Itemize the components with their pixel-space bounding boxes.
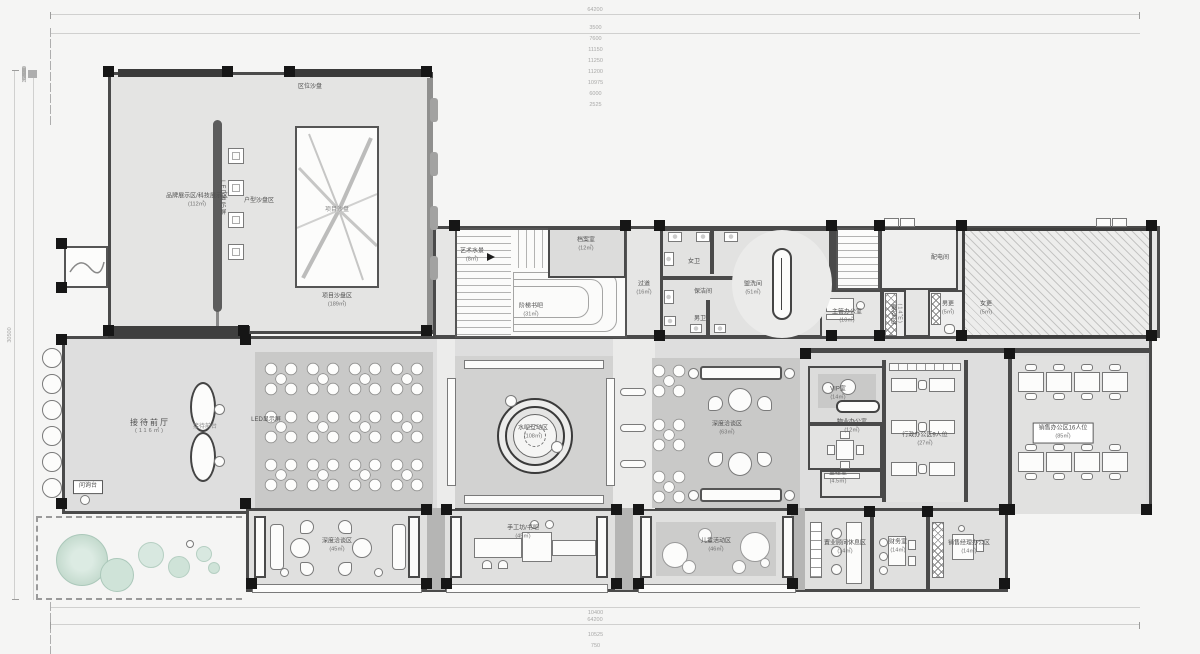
office-chair	[1109, 473, 1121, 480]
room-label: 置业顾问休息区(14㎡)	[824, 541, 866, 556]
unit-model-table	[228, 148, 244, 164]
structural-column	[1004, 348, 1015, 359]
room-label: 行政办公区9人位(27㎡)	[902, 433, 947, 448]
office-chair	[1025, 364, 1037, 371]
room-label: 深度洽谈区(63㎡)	[712, 422, 742, 437]
stairs	[836, 228, 880, 290]
bench	[464, 360, 604, 369]
room-label: 手工坊/书吧(45㎡)	[507, 526, 539, 541]
door-frame	[450, 516, 462, 578]
room-name: VIP室	[830, 387, 846, 393]
lockers	[932, 522, 944, 578]
lounge-chair	[300, 562, 314, 576]
structural-column	[633, 578, 644, 589]
office-desk	[1074, 452, 1100, 472]
room-area: (51㎡)	[744, 289, 762, 296]
room-area: (31㎡)	[519, 311, 543, 318]
room-label: 儿童活动区(46㎡)	[701, 539, 731, 554]
sink-fixture	[690, 324, 702, 333]
room-area: (63㎡)	[712, 429, 742, 436]
stool	[374, 568, 383, 577]
office-desk	[1102, 452, 1128, 472]
sofa	[700, 366, 782, 380]
structural-column	[56, 334, 67, 345]
side-table	[784, 368, 795, 379]
shrub	[138, 542, 164, 568]
room-label: 深度洽谈区(45㎡)	[322, 539, 352, 554]
office-desk	[1074, 372, 1100, 392]
room-name: 问询台	[79, 483, 97, 489]
round-table	[728, 452, 752, 476]
stool	[958, 525, 965, 532]
table-seating-cluster	[306, 410, 340, 444]
lounge-chair	[757, 396, 772, 411]
dim-tick	[28, 77, 37, 78]
office-chair	[918, 380, 927, 390]
room-name: 深度洽谈区	[322, 539, 352, 545]
room-name: 男更	[942, 302, 954, 308]
tree	[100, 558, 134, 592]
office-desk	[929, 462, 955, 476]
side-table	[784, 490, 795, 501]
room-label: 盥洗间(51㎡)	[744, 282, 762, 297]
cabinet-row	[889, 363, 961, 371]
wall-heavy	[108, 326, 250, 338]
door-leaf	[1096, 218, 1111, 227]
sink-fixture	[664, 316, 676, 326]
room-label: 更衣区(14㎡)	[888, 304, 903, 325]
bay-window	[252, 584, 422, 593]
office-chair	[1109, 444, 1121, 451]
bay-window	[638, 584, 796, 593]
room-area: (189㎡)	[322, 301, 352, 308]
room-area: (46㎡)	[701, 546, 731, 553]
structural-column	[611, 504, 622, 515]
wall	[806, 348, 1152, 353]
structural-column	[922, 506, 933, 517]
structural-column	[787, 504, 798, 515]
room-label: 区位沙盘	[298, 84, 322, 92]
room-label: 男卫	[694, 316, 706, 324]
room-area: (116㎡)	[130, 429, 170, 436]
room-label: 艺术水景(8㎡)	[460, 249, 484, 264]
office-chair	[1081, 473, 1093, 480]
dim-top-segments: 350076001115011250112001097560002525	[50, 26, 1140, 36]
structural-column	[421, 578, 432, 589]
dim-label: 3500	[51, 25, 1140, 31]
unit-model-table	[228, 212, 244, 228]
table-seating-cluster	[306, 362, 340, 396]
toilet-fixture	[664, 290, 674, 304]
structural-column	[654, 330, 665, 341]
room-name: 行政办公区9人位	[902, 433, 947, 439]
decor-curve	[66, 248, 106, 286]
stool	[831, 564, 842, 575]
dim-label: 11250	[51, 58, 1140, 64]
room-name: 监控室	[829, 471, 847, 477]
room-label: 阶梯书吧(31㎡)	[519, 304, 543, 319]
room-name: 配电间	[931, 255, 949, 261]
stairs	[457, 230, 511, 336]
office-chair	[1053, 364, 1065, 371]
round-table	[352, 538, 372, 558]
entry-vestibule	[64, 246, 108, 288]
room-label: 问询台	[73, 480, 103, 494]
structural-column	[826, 220, 837, 231]
round-table	[728, 388, 752, 412]
table-seating-cluster	[348, 362, 382, 396]
room-label: 档案室(12㎡)	[577, 238, 595, 253]
room-area: (10㎡)	[832, 317, 862, 324]
room-area: (5㎡)	[980, 309, 992, 316]
structural-column	[874, 330, 885, 341]
stool	[214, 404, 225, 415]
shrub	[196, 546, 212, 562]
office-chair	[1025, 444, 1037, 451]
door-frame	[640, 516, 652, 578]
room-name: 女卫	[688, 259, 700, 265]
room-archive	[548, 228, 626, 278]
curtain-scallop	[42, 374, 62, 394]
room-label: 销售办公区16人位(85㎡)	[1033, 423, 1094, 444]
wall	[870, 512, 874, 590]
structural-column	[800, 348, 811, 359]
structural-column	[240, 334, 251, 345]
lounge-chair	[708, 396, 723, 411]
direction-arrow	[487, 253, 495, 261]
table-seating-cluster	[390, 362, 424, 396]
bench	[620, 460, 646, 468]
room-name: LED显示屏	[219, 180, 225, 216]
dim-bottom-total: 64200	[50, 624, 1140, 625]
structural-column	[441, 578, 452, 589]
office-chair	[1081, 444, 1093, 451]
dim-label: 64200	[587, 7, 602, 13]
dim-label: 7600	[51, 36, 1140, 42]
chair	[856, 445, 864, 455]
long-table	[552, 540, 596, 556]
table-seating-cluster	[652, 470, 686, 504]
office-desk	[891, 462, 917, 476]
structural-column	[787, 578, 798, 589]
room-name: 深度洽谈区	[712, 422, 742, 428]
stool	[545, 520, 554, 529]
table-seating-cluster	[264, 362, 298, 396]
chair	[840, 461, 850, 469]
dim-segment: 2525	[50, 105, 1140, 114]
wall	[882, 360, 886, 502]
structural-column	[449, 220, 460, 231]
unit-model-table	[228, 180, 244, 196]
room-label: 接待前厅(116㎡)	[130, 418, 170, 436]
structural-column	[874, 220, 885, 231]
room-name: 接待前台	[193, 424, 217, 430]
wall	[964, 360, 968, 502]
cabinet	[810, 522, 822, 578]
structural-column	[56, 282, 67, 293]
structural-column	[864, 506, 875, 517]
structural-column	[956, 220, 967, 231]
stool	[280, 568, 289, 577]
room-name: 女更	[980, 302, 992, 308]
door-frame	[596, 516, 608, 578]
room-label: 财务室(14㎡)	[889, 540, 907, 555]
room-name: 接待前厅	[130, 418, 170, 427]
chair	[879, 566, 888, 575]
structural-column	[654, 220, 665, 231]
curtain-scallop	[42, 348, 62, 368]
office-chair	[1025, 473, 1037, 480]
dim-left-segments: 60086007005300105003000	[26, 70, 36, 600]
side-table	[688, 490, 699, 501]
play-pool	[732, 560, 746, 574]
sofa	[700, 488, 782, 502]
play-pool	[682, 560, 696, 574]
room-name: 水吧互动区	[518, 426, 548, 432]
room-label: 水吧互动区(108㎡)	[518, 426, 548, 441]
office-chair	[1081, 364, 1093, 371]
room-name: 阶梯书吧	[519, 304, 543, 310]
door-leaf	[1112, 218, 1127, 227]
room-name: 销售经理办公区	[948, 541, 990, 547]
vanity-counter	[772, 248, 792, 320]
room-name: 艺术水景	[460, 249, 484, 255]
curtain-scallop	[42, 426, 62, 446]
toilet-fixture	[664, 252, 674, 266]
office-chair	[1081, 393, 1093, 400]
office-desk	[1046, 372, 1072, 392]
chair	[908, 540, 916, 550]
room-area: (12㎡)	[837, 427, 867, 434]
room-label: 配电间	[931, 255, 949, 263]
dim-label: 11200	[51, 69, 1140, 75]
table-seating-cluster	[348, 410, 382, 444]
sink-fixture	[714, 324, 726, 333]
room-name: 档案室	[577, 238, 595, 244]
room-label: 项目沙盘区(189㎡)	[322, 294, 352, 309]
room-area: (14㎡)	[830, 394, 846, 401]
chair	[879, 538, 888, 547]
table-seating-cluster	[652, 418, 686, 452]
room-label: VIP室(14㎡)	[830, 387, 846, 402]
curtain-scallop	[42, 400, 62, 420]
office-desk	[1046, 452, 1072, 472]
table-seating-cluster	[652, 364, 686, 398]
office-chair	[1053, 393, 1065, 400]
bench	[620, 424, 646, 432]
room-name: 户型沙盘区	[244, 198, 274, 204]
lockers	[931, 293, 941, 325]
room-name: 财务室	[889, 540, 907, 546]
structural-column	[246, 578, 257, 589]
wall	[926, 512, 930, 590]
office-chair	[1109, 393, 1121, 400]
room-label: LED显示屏	[217, 180, 225, 216]
dim-tick	[50, 116, 1140, 125]
room-area: (4.5㎡)	[829, 478, 847, 485]
room-name: LED显示屏	[251, 417, 281, 423]
lounge-chair	[338, 562, 352, 576]
unit-model-table	[228, 244, 244, 260]
room-name: 物业办公室	[837, 420, 867, 426]
structural-column	[421, 504, 432, 515]
stool	[482, 560, 492, 569]
office-chair	[1053, 473, 1065, 480]
stool	[80, 495, 90, 505]
dim-bottom-segments: 1040010525750104507501032553502000	[50, 600, 1140, 610]
room-area: (45㎡)	[507, 533, 539, 540]
room-area: (85㎡)	[1039, 433, 1088, 440]
room-area: (108㎡)	[518, 433, 548, 440]
curtain-scallop	[42, 452, 62, 472]
desk	[836, 440, 854, 460]
chair	[908, 556, 916, 566]
dim-label: 10975	[51, 80, 1140, 86]
dim-label: 64200	[587, 617, 602, 623]
chair	[879, 552, 888, 561]
play-pool	[760, 558, 770, 568]
chair	[827, 445, 835, 455]
table-seating-cluster	[264, 410, 298, 444]
door-frame	[408, 516, 420, 578]
structural-column	[1146, 330, 1157, 341]
room-name: 销售办公区16人位	[1039, 426, 1088, 432]
wall	[710, 230, 714, 274]
structural-column	[1004, 504, 1015, 515]
room-name: 保洁间	[694, 289, 712, 295]
toilet-fixture	[668, 232, 682, 242]
lounge-chair	[338, 520, 352, 534]
structural-column	[620, 220, 631, 231]
office-chair	[918, 422, 927, 432]
floor-plan: 64200 3500760011150112501120010975600025…	[0, 0, 1200, 654]
bench	[464, 495, 604, 504]
office-desk	[1018, 452, 1044, 472]
vanity-line	[781, 258, 782, 310]
room-shaft-hatched	[962, 228, 1152, 338]
room-name: 儿童活动区	[701, 539, 731, 545]
dim-label: 30500	[7, 327, 13, 342]
toilet-fixture	[724, 232, 738, 242]
dim-label: 11150	[51, 47, 1140, 53]
office-desk	[891, 378, 917, 392]
room-label: 销售经理办公区(14㎡)	[948, 541, 990, 556]
room-label: 保洁间	[694, 289, 712, 297]
office-desk	[1018, 372, 1044, 392]
room-area: (16㎡)	[636, 289, 651, 296]
door-leaf	[884, 218, 899, 227]
structural-column	[103, 325, 114, 336]
office-chair	[1025, 393, 1037, 400]
room-area: (14㎡)	[824, 548, 866, 555]
office-chair	[918, 464, 927, 474]
room-label: 女更(5㎡)	[980, 302, 992, 317]
table-seating-cluster	[390, 410, 424, 444]
sofa	[836, 400, 880, 413]
office-desk	[1102, 372, 1128, 392]
dim-top-total: 64200	[50, 14, 1140, 15]
lounge-chair	[300, 520, 314, 534]
room-label: 户型沙盘区	[244, 198, 274, 206]
office-chair	[1109, 364, 1121, 371]
stool	[505, 395, 517, 407]
room-label: 物业办公室(12㎡)	[837, 420, 867, 435]
structural-column	[240, 498, 251, 509]
shrub	[208, 562, 220, 574]
room-label: 接待前台	[193, 424, 217, 432]
structural-column	[956, 330, 967, 341]
table-seating-cluster	[264, 458, 298, 492]
table-seating-cluster	[390, 458, 424, 492]
lounge-chair	[757, 452, 772, 467]
room-area: (12㎡)	[577, 245, 595, 252]
room-area: (14㎡)	[889, 547, 907, 554]
stool	[831, 528, 842, 539]
shrub	[168, 556, 190, 578]
door-frame	[254, 516, 266, 578]
room-label: 监控室(4.5㎡)	[829, 471, 847, 486]
room-name: 盥洗间	[744, 282, 762, 288]
room-label: 过道(16㎡)	[636, 282, 651, 297]
structural-column	[633, 504, 644, 515]
dim-label: 10400	[51, 610, 1140, 616]
room-name: 主管办公室	[832, 310, 862, 316]
room-area: (27㎡)	[902, 440, 947, 447]
room-name: 手工坊/书吧	[507, 526, 539, 532]
reception-desk	[190, 432, 216, 482]
curtain-scallop	[42, 478, 62, 498]
room-area: (5㎡)	[942, 309, 954, 316]
room-name: 项目沙盘	[325, 207, 349, 213]
room-area: (8㎡)	[460, 256, 484, 263]
stool	[551, 441, 563, 453]
wall	[706, 300, 710, 336]
display-shelf	[606, 378, 615, 486]
door-frame	[782, 516, 794, 578]
room-area: (14㎡)	[895, 304, 902, 325]
dim-label: 750	[51, 643, 1140, 649]
lounge-chair	[708, 452, 723, 467]
round-table	[290, 538, 310, 558]
dim-segment: 750	[50, 646, 1140, 654]
bay-window	[446, 584, 608, 593]
dim-label: 6000	[51, 91, 1140, 97]
structural-column	[1146, 220, 1157, 231]
bench	[620, 388, 646, 396]
room-name: 区位沙盘	[298, 84, 322, 90]
structural-column	[56, 498, 67, 509]
office-chair	[1053, 444, 1065, 451]
sofa	[270, 524, 284, 570]
structural-column	[56, 238, 67, 249]
toilet-fixture	[696, 232, 710, 242]
room-name: 更衣区	[889, 304, 895, 325]
room-label: 项目沙盘	[325, 207, 349, 215]
dim-label: 10525	[51, 632, 1140, 638]
door-leaf	[900, 218, 915, 227]
table-seating-cluster	[348, 458, 382, 492]
room-label: LED显示屏	[251, 417, 281, 425]
office-desk	[929, 378, 955, 392]
window-bump	[430, 206, 438, 230]
stone	[186, 540, 194, 548]
structural-column	[999, 578, 1010, 589]
room-name: 项目沙盘区	[322, 294, 352, 300]
room-label: 女卫	[688, 259, 700, 267]
structural-column	[826, 330, 837, 341]
display-shelf	[447, 378, 456, 486]
dim-label: 2525	[51, 102, 1140, 108]
